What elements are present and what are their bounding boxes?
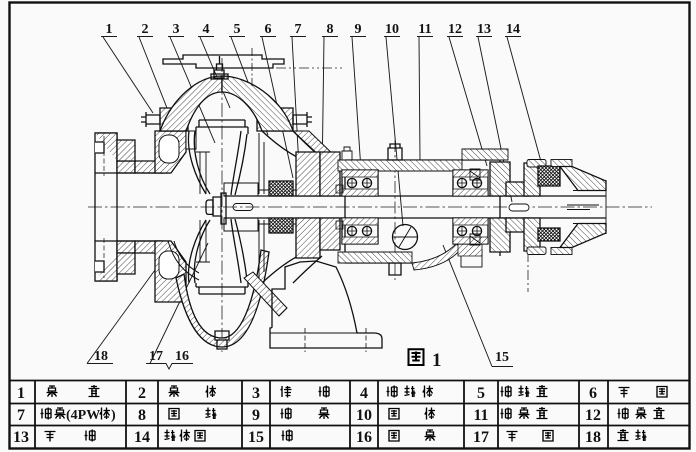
svg-text:15: 15	[248, 429, 264, 446]
svg-text:11: 11	[418, 22, 431, 37]
svg-text:6: 6	[589, 385, 597, 402]
svg-text:10: 10	[356, 407, 372, 424]
svg-text:1: 1	[106, 22, 113, 37]
svg-text:9: 9	[252, 407, 260, 424]
svg-text:14: 14	[506, 22, 520, 37]
svg-text:15: 15	[495, 350, 509, 365]
svg-text:5: 5	[477, 385, 485, 402]
svg-text:7: 7	[17, 407, 25, 424]
svg-text:14: 14	[134, 429, 150, 446]
svg-text:): )	[111, 408, 116, 423]
svg-text:11: 11	[473, 407, 488, 424]
svg-text:(4PW: (4PW	[66, 408, 100, 423]
svg-text:4: 4	[360, 385, 368, 402]
svg-text:4: 4	[203, 22, 210, 37]
svg-text:9: 9	[355, 22, 362, 37]
svg-text:7: 7	[295, 22, 302, 37]
svg-text:1: 1	[17, 385, 25, 402]
svg-text:17: 17	[473, 429, 489, 446]
svg-text:16: 16	[356, 429, 372, 446]
svg-text:5: 5	[234, 22, 241, 37]
svg-text:2: 2	[138, 385, 146, 402]
svg-text:1: 1	[432, 350, 442, 371]
svg-text:2: 2	[142, 22, 149, 37]
svg-text:10: 10	[385, 22, 399, 37]
svg-text:13: 13	[13, 429, 29, 446]
svg-text:12: 12	[585, 407, 601, 424]
svg-text:6: 6	[265, 22, 272, 37]
svg-text:12: 12	[448, 22, 462, 37]
svg-text:8: 8	[138, 407, 146, 424]
svg-text:18: 18	[585, 429, 601, 446]
svg-text:3: 3	[252, 385, 260, 402]
svg-text:13: 13	[477, 22, 491, 37]
svg-text:3: 3	[173, 22, 180, 37]
svg-text:16: 16	[175, 349, 189, 364]
svg-text:8: 8	[327, 22, 334, 37]
